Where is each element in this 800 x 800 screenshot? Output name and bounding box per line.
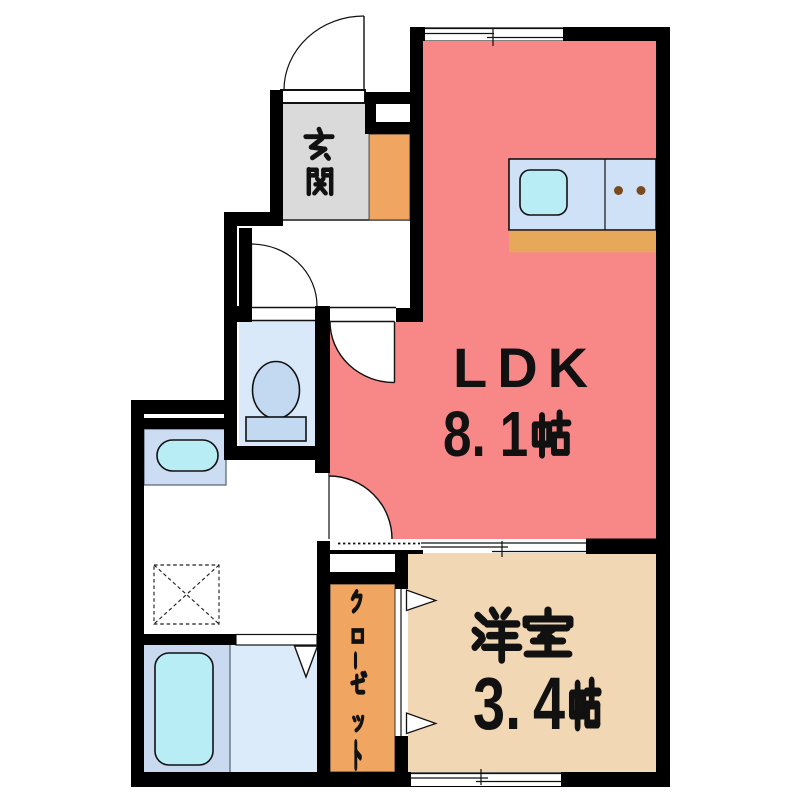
svg-text:1: 1 — [500, 400, 528, 471]
svg-text:8.: 8. — [443, 400, 486, 471]
svg-text:LDK: LDK — [453, 336, 598, 399]
svg-text:4: 4 — [533, 663, 565, 746]
svg-text:3.: 3. — [473, 663, 521, 746]
